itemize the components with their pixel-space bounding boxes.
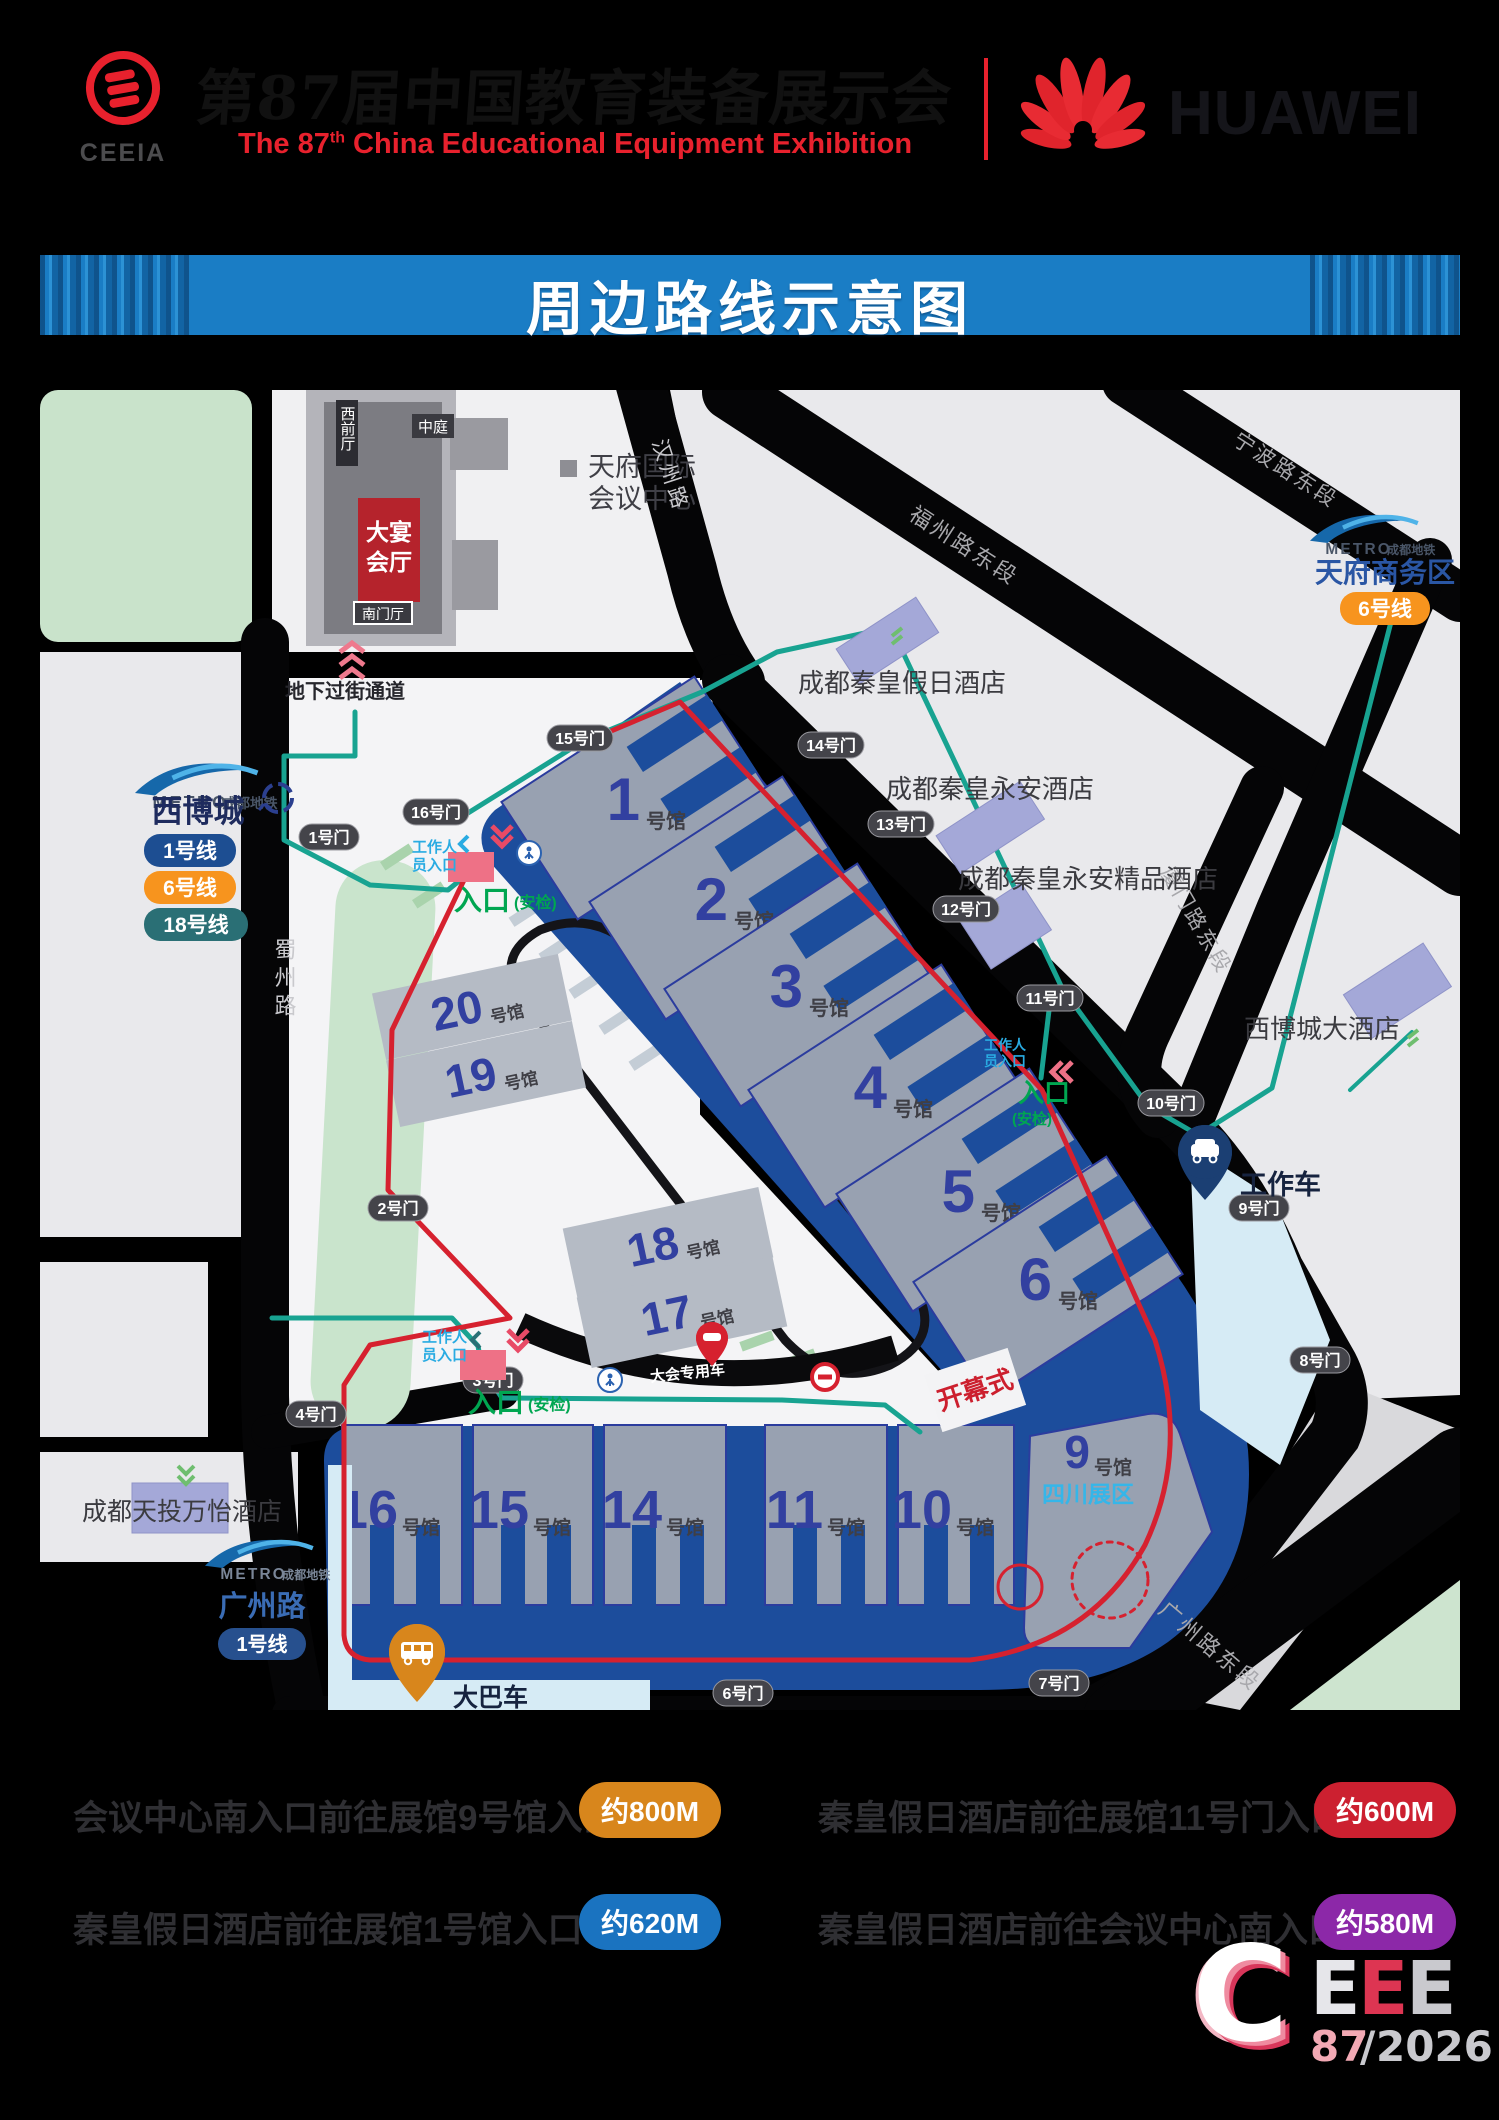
gate-2: 2号门 <box>368 1195 428 1221</box>
gate-1-label: 1号门 <box>309 828 350 847</box>
xibocheng-line1-badge: 1号线 <box>163 839 217 863</box>
station-xibocheng: 西博城 <box>152 794 245 829</box>
hall-6-num: 6 <box>1019 1246 1052 1313</box>
bus-label: 大巴车 <box>453 1683 528 1710</box>
hall-1-num: 1 <box>607 766 640 833</box>
legend-item-3-text: 秦皇假日酒店前往展馆11号门入口 <box>818 1790 1345 1841</box>
entrance-south-staff-1: 工作人 <box>422 1328 468 1346</box>
entrance-south-label: 入口 <box>468 1387 524 1418</box>
gate-2-label: 2号门 <box>378 1199 419 1218</box>
entrance-east-label: 入口 <box>1018 1078 1070 1108</box>
ceeia-logo: CEEIA <box>78 48 168 168</box>
hall-10: 10 号馆 <box>892 1425 1014 1607</box>
ceee-e2: E <box>1358 1946 1409 2032</box>
page: CEEIA 第87届中国教育装备展示会 The 87th China Educa… <box>0 0 1499 2120</box>
gate-6: 6号门 <box>713 1680 773 1706</box>
gate-12: 12号门 <box>933 896 999 922</box>
gate-1: 1号门 <box>299 824 359 850</box>
gate-8-label: 8号门 <box>1300 1351 1341 1370</box>
hall-3-suffix: 号馆 <box>809 996 849 1020</box>
entrance-north-staff-2: 员入口 <box>412 857 457 874</box>
legend-item-2-distance: 约620M <box>579 1894 721 1950</box>
park-block-nw <box>40 390 252 642</box>
gate-13: 13号门 <box>868 811 934 837</box>
conv-annex-2 <box>452 540 498 610</box>
gate-16: 16号门 <box>403 799 469 825</box>
entrance-east-staff-2: 员入口 <box>984 1053 1026 1069</box>
station-guangzhoulu: 广州路 <box>218 1590 306 1623</box>
hall-11-num: 11 <box>766 1480 823 1540</box>
hall-6-suffix: 号馆 <box>1058 1289 1098 1313</box>
ceee-e3: E <box>1406 1946 1457 2032</box>
hall-9-num: 9 <box>1064 1426 1090 1478</box>
xibocheng-line6-badge: 6号线 <box>163 876 217 900</box>
hall-4-suffix: 号馆 <box>893 1097 933 1121</box>
sichuan-area-label: 四川展区 <box>1042 1481 1134 1507</box>
hall-18-num: 18 <box>622 1215 683 1277</box>
gate-12-label: 12号门 <box>941 900 991 919</box>
entrance-south-staff-2: 员入口 <box>422 1347 467 1364</box>
entrance-north-security: (安检) <box>514 893 557 912</box>
hall-10-suffix: 号馆 <box>956 1516 994 1539</box>
hall-16-suffix: 号馆 <box>402 1516 440 1539</box>
pedestrian-icon-1 <box>517 841 541 865</box>
hotel-xibo-label: 西博城大酒店 <box>1244 1014 1400 1044</box>
ceee-year: 2026 <box>1376 2022 1493 2071</box>
metro-brand-cn: 成都地铁 <box>282 1567 331 1582</box>
hall-11-suffix: 号馆 <box>827 1516 865 1539</box>
west-hall-label: 西前厅 <box>339 406 356 451</box>
pedestrian-icon-2 <box>598 1368 622 1392</box>
gate-14: 14号门 <box>798 732 864 758</box>
gate-15-label: 15号门 <box>555 729 605 748</box>
hotel-boutique-label: 成都秦皇永安精品酒店 <box>958 864 1218 894</box>
gate-8: 8号门 <box>1290 1347 1350 1373</box>
gate-10: 10号门 <box>1138 1090 1204 1116</box>
map-title: 周边路线示意图 <box>40 262 1460 346</box>
work-car-label: 工作车 <box>1240 1169 1321 1200</box>
ceee-slash: / <box>1360 2022 1375 2071</box>
gate-7: 7号门 <box>1029 1670 1089 1696</box>
underpass-label: 地下过街通道 <box>285 679 405 703</box>
hotel-yongan-label: 成都秦皇永安酒店 <box>886 774 1094 804</box>
tianfu-line6-badge: 6号线 <box>1358 597 1412 621</box>
hall-15-suffix: 号馆 <box>533 1516 571 1539</box>
hall-14: 14 号馆 <box>602 1425 726 1607</box>
entrance-south-security: (安检) <box>528 1395 571 1414</box>
hall-9-suffix: 号馆 <box>1094 1456 1132 1479</box>
hall-3-num: 3 <box>770 953 803 1020</box>
hall-5-num: 5 <box>942 1158 975 1225</box>
entrance-east-staff-1: 工作人 <box>984 1037 1027 1053</box>
hall-14-suffix: 号馆 <box>666 1516 704 1539</box>
ceee-c: C <box>1192 1918 1289 2072</box>
gate-16-label: 16号门 <box>411 803 461 822</box>
ceee-e1: E <box>1310 1946 1361 2032</box>
gate-13-label: 13号门 <box>876 815 926 834</box>
hall-1-suffix: 号馆 <box>646 809 686 833</box>
hall-4-num: 4 <box>854 1054 888 1121</box>
gate-4: 4号门 <box>286 1401 346 1427</box>
legend-item-3-distance: 约600M <box>1314 1782 1456 1838</box>
exhibition-title-en: The 87th China Educational Equipment Exh… <box>238 128 938 161</box>
gate-7-label: 7号门 <box>1039 1674 1080 1693</box>
legend-item-1-text: 会议中心南入口前往展馆9号馆入口 <box>73 1790 617 1841</box>
west-block-2 <box>40 1262 208 1437</box>
legend-item-4-distance: 约580M <box>1314 1894 1456 1950</box>
huawei-flower-icon <box>1018 40 1148 162</box>
gate-11: 11号门 <box>1017 985 1083 1011</box>
no-entry-icon <box>812 1364 838 1390</box>
gate-10-label: 10号门 <box>1146 1094 1196 1113</box>
banquet-label-1: 大宴 <box>366 519 412 545</box>
road-label-shuzhou: 蜀州路 <box>272 938 297 1022</box>
hall-10-num: 10 <box>892 1480 952 1540</box>
parking-strip-west <box>328 1465 352 1710</box>
west-block-1 <box>40 652 255 1237</box>
hotel-wanyi-label: 成都天投万怡酒店 <box>82 1498 282 1526</box>
metro-brand: METRO <box>220 1566 287 1583</box>
south-hall-label: 南门厅 <box>362 606 404 622</box>
legend-item-1-distance: 约800M <box>579 1782 721 1838</box>
legend-item-2-text: 秦皇假日酒店前往展馆1号馆入口 <box>73 1902 582 1953</box>
gate-15: 15号门 <box>547 725 613 751</box>
hall-16: 16 号馆 <box>338 1425 462 1607</box>
gate-14-label: 14号门 <box>806 736 856 755</box>
entrance-east-security: (安检) <box>1012 1110 1052 1128</box>
banquet-label-2: 会厅 <box>366 549 412 575</box>
ceeia-ring-icon <box>80 48 166 132</box>
hall-15: 15 号馆 <box>469 1425 593 1607</box>
hotel-holiday-label: 成都秦皇假日酒店 <box>798 668 1006 698</box>
conv-annex-1 <box>450 418 508 470</box>
hall-11: 11 号馆 <box>765 1425 887 1607</box>
gate-9-label: 9号门 <box>1239 1199 1280 1218</box>
entrance-north-staff-1: 工作人 <box>412 838 458 856</box>
metro-brand: METRO <box>1325 541 1392 558</box>
guangzhoulu-line1-badge: 1号线 <box>236 1632 287 1656</box>
hall-20-num: 20 <box>426 979 487 1041</box>
station-tianfu: 天府商务区 <box>1315 556 1455 588</box>
xibocheng-line18-badge: 18号线 <box>163 913 228 937</box>
metro-brand-cn: 成都地铁 <box>1387 542 1436 557</box>
gate-6-label: 6号门 <box>723 1684 764 1703</box>
header-divider <box>984 58 988 160</box>
exhibition-title-cn: 第87届中国教育装备展示会 <box>193 50 989 137</box>
entrance-north-label: 入口 <box>454 885 510 916</box>
hall-2-num: 2 <box>695 866 728 933</box>
huawei-label: HUAWEI <box>1168 78 1422 149</box>
hall-14-num: 14 <box>602 1480 662 1540</box>
route-map: 西前厅 中庭 大宴 会厅 南门厅 天府国际 会议中心 地下过街通道 <box>40 390 1460 1710</box>
hall-19-num: 19 <box>440 1046 501 1108</box>
center-legend-square <box>560 460 577 477</box>
hall-15-num: 15 <box>469 1480 529 1540</box>
gate-11-label: 11号门 <box>1026 989 1075 1008</box>
atrium-label: 中庭 <box>418 419 448 436</box>
ceeia-label: CEEIA <box>78 139 168 168</box>
gate-4-label: 4号门 <box>296 1405 337 1424</box>
hall-17-num: 17 <box>636 1284 697 1346</box>
